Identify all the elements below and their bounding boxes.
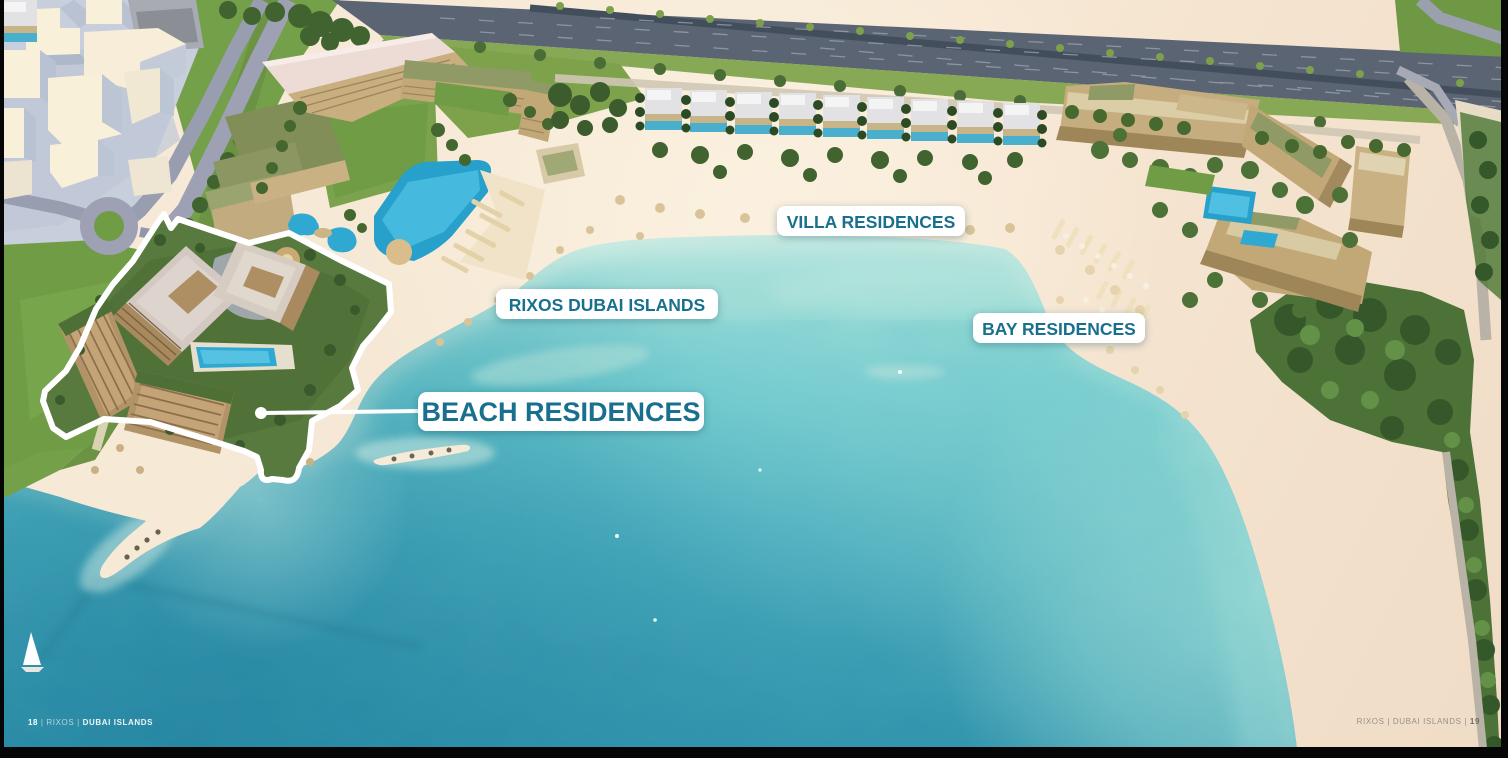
svg-text:18 | RIXOS | DUBAI ISLANDS: 18 | RIXOS | DUBAI ISLANDS [28,718,153,727]
svg-text:BEACH RESIDENCES: BEACH RESIDENCES [421,397,700,427]
svg-text:VILLA RESIDENCES: VILLA RESIDENCES [787,212,956,232]
svg-text:RIXOS | DUBAI ISLANDS | 19: RIXOS | DUBAI ISLANDS | 19 [1357,717,1480,726]
svg-text:RIXOS DUBAI ISLANDS: RIXOS DUBAI ISLANDS [509,295,705,315]
svg-text:BAY RESIDENCES: BAY RESIDENCES [982,319,1136,339]
